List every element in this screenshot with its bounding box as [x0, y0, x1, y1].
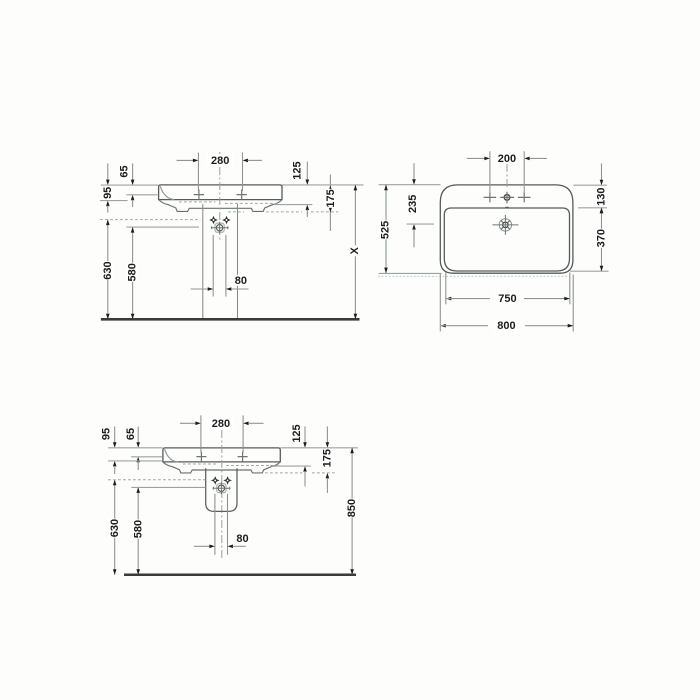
svg-text:95: 95: [100, 428, 112, 440]
svg-text:630: 630: [109, 519, 121, 537]
svg-text:130: 130: [595, 188, 607, 206]
svg-text:630: 630: [102, 261, 114, 279]
svg-text:280: 280: [212, 418, 230, 430]
svg-text:65: 65: [125, 428, 137, 440]
svg-text:750: 750: [498, 293, 516, 305]
svg-text:370: 370: [595, 229, 607, 247]
svg-text:X: X: [349, 246, 361, 254]
svg-text:800: 800: [497, 320, 515, 332]
svg-text:125: 125: [291, 424, 303, 442]
svg-text:65: 65: [118, 165, 130, 177]
svg-text:580: 580: [133, 520, 145, 538]
svg-text:235: 235: [407, 195, 419, 213]
svg-text:175: 175: [325, 189, 337, 207]
svg-text:525: 525: [380, 221, 392, 239]
svg-text:175: 175: [322, 449, 334, 467]
svg-text:850: 850: [346, 499, 358, 517]
svg-text:200: 200: [498, 153, 516, 165]
svg-text:95: 95: [102, 187, 114, 199]
svg-text:80: 80: [236, 533, 248, 545]
svg-text:125: 125: [292, 161, 304, 179]
svg-text:280: 280: [211, 155, 229, 167]
svg-text:80: 80: [235, 275, 247, 287]
svg-text:580: 580: [127, 263, 139, 281]
